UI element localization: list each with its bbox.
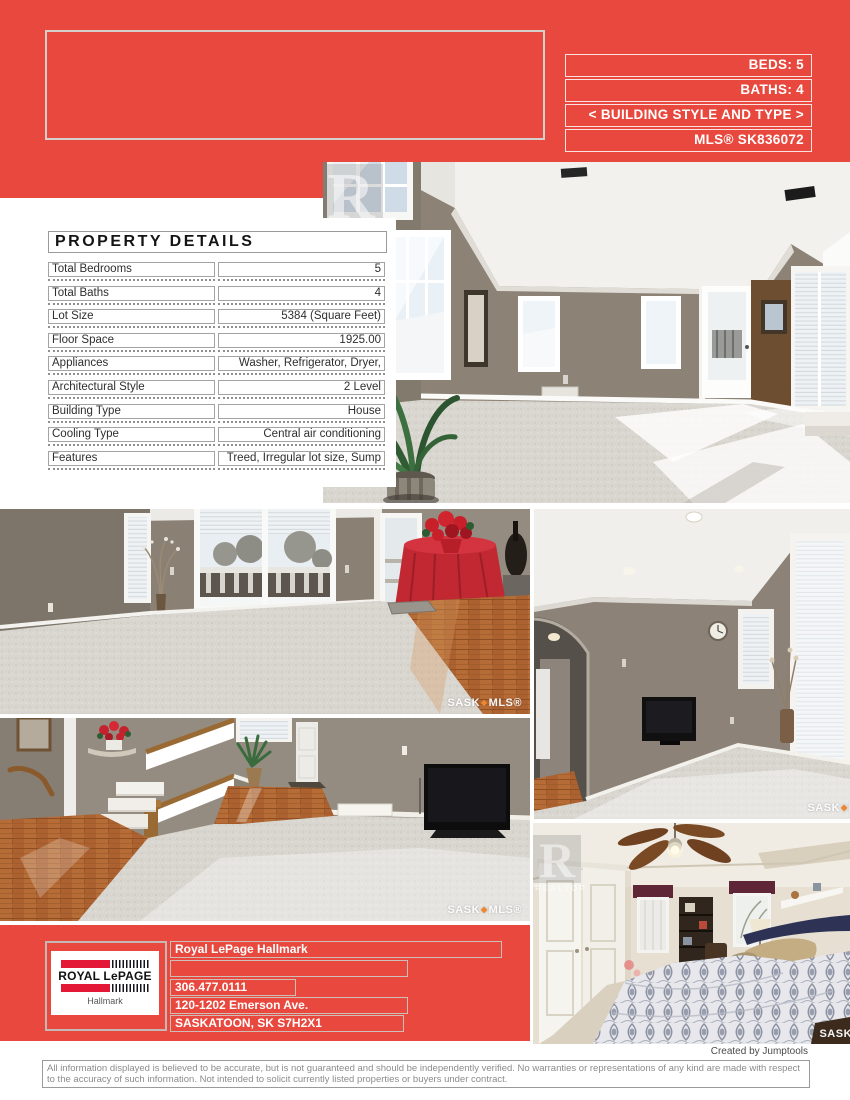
- logo-wordmark: ROYAL LePAGE: [58, 969, 152, 983]
- sask-mls-watermark: SASK◆MLS®: [447, 904, 522, 916]
- sask-mls-watermark: SASK◆MLS®: [819, 1028, 850, 1040]
- realtor-r-icon: R: [323, 164, 383, 226]
- detail-value: 2 Level: [218, 380, 385, 395]
- listing-title-box: [45, 30, 545, 140]
- photo-entry-staircase: SASK◆MLS®: [0, 718, 530, 921]
- photo-great-room: R REALTOR: [323, 162, 850, 503]
- office-address-line2: SASKATOON, SK S7H2X1: [170, 1015, 404, 1032]
- office-phone: 306.477.0111: [170, 979, 296, 996]
- detail-label: Building Type: [48, 404, 215, 419]
- detail-label: Lot Size: [48, 309, 215, 324]
- realtor-r-icon: R: [533, 835, 581, 883]
- badge-baths: BATHS: 4: [565, 79, 812, 102]
- detail-label: Floor Space: [48, 333, 215, 348]
- photo-bedroom: R REALTOR SASK◆MLS®: [533, 823, 850, 1044]
- detail-row: Total Baths 4: [48, 286, 385, 308]
- detail-value: 4: [218, 286, 385, 301]
- royal-lepage-logo: ROYAL LePAGE Hallmark: [51, 951, 159, 1015]
- photo-living-room: SASK◆MLS®: [0, 509, 530, 714]
- property-details-panel: PROPERTY DETAILS Total Bedrooms 5 Total …: [40, 218, 396, 487]
- office-address-line1: 120-1202 Emerson Ave.: [170, 997, 408, 1014]
- agent-name-box-empty: [170, 960, 408, 977]
- sask-mls-watermark: SASK◆MLS®: [807, 802, 850, 814]
- detail-label: Cooling Type: [48, 427, 215, 442]
- detail-label: Total Baths: [48, 286, 215, 301]
- detail-row: Features Treed, Irregular lot size, Sump: [48, 451, 385, 473]
- detail-value: Treed, Irregular lot size, Sump: [218, 451, 385, 466]
- detail-row: Appliances Washer, Refrigerator, Dryer,: [48, 356, 385, 378]
- property-details-title: PROPERTY DETAILS: [48, 231, 387, 253]
- detail-value: Central air conditioning: [218, 427, 385, 442]
- mls-diamond-icon: ◆: [840, 803, 849, 812]
- feature-sheet-page: BEDS: 5 BATHS: 4 < BUILDING STYLE AND TY…: [0, 0, 850, 1100]
- mls-diamond-icon: ◆: [480, 905, 489, 914]
- detail-row: Floor Space 1925.00: [48, 333, 385, 355]
- detail-row: Building Type House: [48, 404, 385, 426]
- created-by-credit: Created by Jumptools: [711, 1046, 808, 1057]
- detail-label: Features: [48, 451, 215, 466]
- detail-row: Architectural Style 2 Level: [48, 380, 385, 402]
- detail-value: 1925.00: [218, 333, 385, 348]
- detail-row: Cooling Type Central air conditioning: [48, 427, 385, 449]
- mls-diamond-icon: ◆: [480, 698, 489, 707]
- logo-bar-top: [61, 960, 149, 968]
- office-name: Royal LePage Hallmark: [170, 941, 502, 958]
- logo-division-label: Hallmark: [87, 996, 123, 1006]
- detail-value: 5384 (Square Feet): [218, 309, 385, 324]
- detail-label: Appliances: [48, 356, 215, 371]
- realtor-watermark: R REALTOR: [533, 835, 589, 893]
- sask-mls-watermark: SASK◆MLS®: [447, 697, 522, 709]
- disclaimer-text: All information displayed is believed to…: [42, 1060, 810, 1088]
- badge-building-style-selector[interactable]: < BUILDING STYLE AND TYPE >: [565, 104, 812, 127]
- detail-label: Total Bedrooms: [48, 262, 215, 277]
- badge-mls-number: MLS® SK836072: [565, 129, 812, 152]
- detail-value: House: [218, 404, 385, 419]
- detail-row: Lot Size 5384 (Square Feet): [48, 309, 385, 331]
- badge-beds: BEDS: 5: [565, 54, 812, 77]
- photo-family-room: SASK◆MLS®: [534, 509, 850, 819]
- detail-value: Washer, Refrigerator, Dryer,: [218, 356, 385, 371]
- detail-row: Total Bedrooms 5: [48, 262, 385, 284]
- logo-bar-bottom: [61, 984, 149, 992]
- detail-value: 5: [218, 262, 385, 277]
- detail-label: Architectural Style: [48, 380, 215, 395]
